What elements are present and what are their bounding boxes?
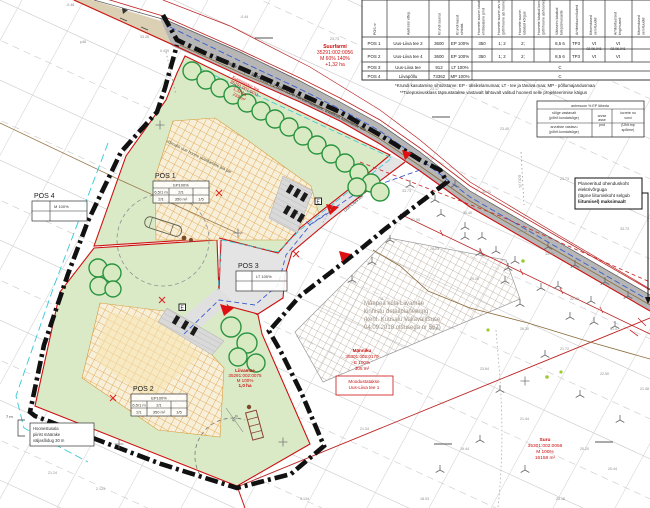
svg-text:(põhihoone ab hoone): (põhihoone ab hoone)	[502, 0, 506, 35]
svg-text:POS 1: POS 1	[368, 41, 381, 46]
svg-text:väljasõidug 30 m: väljasõidug 30 m	[33, 438, 65, 443]
svg-text:POS 4: POS 4	[368, 74, 381, 79]
svg-text:Hoonete lubatud korrus: Hoonete lubatud korrus	[537, 0, 541, 35]
svg-text:2/1: 2/1	[156, 403, 162, 408]
svg-text:MP 100%: MP 100%	[451, 74, 470, 79]
svg-text:Mäepea küla Liivamäe: Mäepea küla Liivamäe	[364, 301, 425, 307]
svg-text:Väikseim lubatud: Väikseim lubatud	[555, 8, 559, 35]
svg-text:Arhitektuursed: Arhitektuursed	[614, 12, 618, 35]
svg-text:(põhif.kondatsõge): (põhif.kondatsõge)	[549, 130, 579, 134]
svg-text:Liivapõllu: Liivapõllu	[399, 74, 418, 79]
svg-text:-0.48: -0.48	[66, 3, 74, 7]
svg-text:POS nr: POS nr	[373, 22, 377, 35]
svg-text:E 100%: E 100%	[354, 360, 370, 365]
svg-text:Uus-Liiva tee: Uus-Liiva tee	[395, 65, 421, 70]
svg-text:32.55: 32.55	[411, 218, 420, 222]
svg-text:30.31: 30.31	[482, 190, 491, 194]
svg-text:16158 m²: 16158 m²	[535, 455, 556, 461]
svg-text:POS 2: POS 2	[368, 54, 381, 59]
svg-text:arvutiste vastavu: arvutiste vastavu	[551, 125, 578, 129]
svg-text:23.64: 23.64	[480, 367, 489, 371]
svg-text:POS 2: POS 2	[133, 386, 154, 393]
svg-text:Hoonete suurim arv kru: Hoonete suurim arv kru	[497, 0, 501, 35]
svg-text:servituudid: servituudid	[642, 18, 646, 35]
svg-text:02.06.041: 02.06.041	[610, 47, 625, 51]
svg-text:2/1: 2/1	[158, 197, 164, 202]
svg-text:8,5 6: 8,5 6	[555, 54, 565, 59]
svg-text:23.11: 23.11	[519, 229, 528, 233]
svg-text:30.40: 30.40	[463, 211, 472, 215]
svg-text:3.134: 3.134	[300, 497, 309, 501]
svg-text:EP100%: EP100%	[151, 396, 167, 401]
svg-text:35301:002:0056: 35301:002:0056	[528, 443, 563, 449]
svg-text:-0.44: -0.44	[240, 15, 248, 19]
svg-text:tulepüsivusaste: tulepüsivusaste	[560, 10, 564, 35]
svg-text:35301:002:0170: 35301:002:0170	[345, 354, 379, 359]
svg-text:6,5/1 m: 6,5/1 m	[132, 403, 146, 408]
svg-text:21.34: 21.34	[360, 427, 369, 431]
svg-text:23.73: 23.73	[330, 37, 339, 41]
svg-text:(täpne liitumiskoht selgub: (täpne liitumiskoht selgub	[578, 193, 630, 198]
svg-text:Uus-Liiva tee 4: Uus-Liiva tee 4	[393, 54, 423, 59]
svg-text:(põhihoone abihoone): (põhihoone abihoone)	[542, 0, 546, 35]
svg-text:Aadressi ettep.: Aadressi ettep.	[407, 11, 411, 35]
svg-text:912: 912	[435, 65, 443, 70]
svg-text:Hoonete suurim: Hoonete suurim	[518, 10, 522, 35]
svg-text:C: C	[558, 74, 561, 79]
svg-text:1/5: 1/5	[198, 197, 204, 202]
svg-text:+1,32 ha: +1,32 ha	[325, 62, 345, 68]
svg-text:POS 4: POS 4	[34, 193, 55, 200]
svg-text:TP3: TP3	[572, 41, 581, 46]
svg-text:Kitsendused: Kitsendused	[589, 15, 593, 35]
svg-text:tingimused: tingimused	[618, 18, 622, 35]
svg-text:33.73: 33.73	[620, 227, 629, 231]
svg-text:Kitsendused: Kitsendused	[637, 15, 641, 35]
svg-text:21.72: 21.72	[560, 347, 569, 351]
svg-text:20.20: 20.20	[580, 447, 589, 451]
svg-text:2/1: 2/1	[178, 190, 184, 195]
svg-text:23.40: 23.40	[500, 127, 509, 131]
svg-text:EP100%: EP100%	[173, 183, 189, 188]
svg-text:21.24: 21.24	[48, 471, 57, 475]
svg-text:M 100%: M 100%	[54, 204, 69, 209]
svg-text:POS 1: POS 1	[155, 173, 176, 180]
svg-text:lucrete nu: lucrete nu	[620, 111, 636, 115]
svg-text:0.439: 0.439	[160, 49, 169, 53]
svg-text:3600: 3600	[434, 41, 444, 46]
svg-text:piirist määrake: piirist määrake	[33, 432, 61, 437]
svg-text:305 m²: 305 m²	[355, 366, 370, 371]
svg-text:20.44: 20.44	[608, 467, 617, 471]
svg-text:EP 100%: EP 100%	[451, 41, 469, 46]
svg-text:M 100%: M 100%	[536, 449, 554, 455]
svg-text:1/5: 1/5	[176, 410, 182, 415]
svg-text:7 m: 7 m	[6, 414, 13, 419]
svg-text:ehitisealune pind: ehitisealune pind	[482, 8, 486, 35]
svg-text:pnd: pnd	[599, 123, 605, 127]
svg-text:Suru: Suru	[540, 437, 551, 443]
svg-text:Hoonete suurim lubatud: Hoonete suurim lubatud	[477, 0, 481, 35]
svg-text:(keht. Kuusalu Vallavalitsuse: (keht. Kuusalu Vallavalitsuse	[364, 317, 441, 323]
svg-text:POS 3: POS 3	[238, 263, 259, 270]
svg-text:2/1: 2/1	[136, 410, 142, 415]
svg-text:23.73: 23.73	[560, 177, 569, 181]
svg-text:Uus-Liiva tee 2: Uus-Liiva tee 2	[393, 41, 423, 46]
svg-text:21.44: 21.44	[520, 417, 529, 421]
svg-text:antresoon % EP läheda: antresoon % EP läheda	[571, 104, 609, 108]
svg-text:28.23: 28.23	[430, 247, 439, 251]
svg-text:1; 2: 1; 2	[498, 54, 506, 59]
svg-text:Krundi suurus: Krundi suurus	[438, 13, 442, 35]
svg-text:73362: 73362	[433, 74, 446, 79]
svg-text:33.48: 33.48	[545, 252, 554, 256]
svg-text:6,5/1 m: 6,5/1 m	[154, 190, 168, 195]
svg-text:sihtotst.: sihtotst.	[460, 23, 464, 35]
svg-text:Moodustatakse: Moodustatakse	[348, 379, 380, 384]
svg-text:350: 350	[478, 54, 486, 59]
svg-text:350 m²: 350 m²	[153, 410, 166, 415]
svg-text:lubatud kõrgus: lubatud kõrgus	[523, 11, 527, 35]
svg-text:1,0 ha: 1,0 ha	[238, 383, 251, 388]
svg-text:350 m²: 350 m²	[175, 197, 188, 202]
svg-text:29.20: 29.20	[470, 277, 479, 281]
svg-text:elektrivõrguga: elektrivõrguga	[578, 187, 607, 192]
svg-text:33.73: 33.73	[402, 189, 411, 193]
svg-text:32.43: 32.43	[570, 297, 579, 301]
svg-text:02.06.041: 02.06.041	[586, 47, 601, 51]
svg-text:*Krundi kasutamise sihtotstarv: *Krundi kasutamise sihtotstarve: EP - ük…	[395, 83, 595, 88]
svg-text:18.03: 18.03	[420, 497, 429, 501]
svg-text:asse: asse	[598, 118, 606, 122]
svg-text:EP 100%: EP 100%	[451, 54, 469, 59]
svg-text:liitumisel) maksimaalt: liitumisel) maksimaalt	[578, 199, 626, 204]
svg-text:21.48: 21.48	[640, 387, 649, 391]
svg-text:2;: 2;	[521, 54, 525, 59]
svg-text:26.30: 26.30	[520, 327, 529, 331]
svg-text:sõlge vastavalt: sõlge vastavalt	[552, 111, 576, 115]
svg-text:kinnistu detailplaneering: kinnistu detailplaneering	[364, 309, 428, 315]
svg-text:Krundi kasut.: Krundi kasut.	[456, 14, 460, 35]
svg-text:Uus-Liiva tee 1: Uus-Liiva tee 1	[349, 385, 380, 390]
svg-text:2;: 2;	[521, 41, 525, 46]
svg-text:spõime): spõime)	[622, 128, 635, 132]
svg-text:31.07: 31.07	[610, 327, 619, 331]
svg-text:POS 3: POS 3	[368, 65, 381, 70]
svg-text:(Ühit.mp: (Ühit.mp	[621, 123, 635, 127]
svg-text:3600: 3600	[434, 54, 444, 59]
svg-text:LT 100%: LT 100%	[256, 274, 272, 279]
svg-text:C: C	[558, 65, 561, 70]
svg-text:Hoonestusala: Hoonestusala	[33, 426, 59, 431]
svg-text:Arhitektuurinõuded: Arhitektuurinõuded	[575, 5, 579, 35]
svg-text:19.44: 19.44	[460, 447, 469, 451]
svg-text:8,5 6: 8,5 6	[555, 41, 565, 46]
svg-text:2.124: 2.124	[96, 487, 105, 491]
svg-text:1; 2: 1; 2	[498, 41, 506, 46]
svg-text:Männiku: Männiku	[353, 348, 372, 353]
svg-text:(põhif.kondatsõge): (põhif.kondatsõge)	[549, 116, 579, 120]
svg-text:vurci: vurci	[624, 116, 632, 120]
svg-text:TP3: TP3	[572, 54, 581, 59]
svg-text:22.50: 22.50	[600, 372, 609, 376]
svg-text:servituudid: servituudid	[594, 18, 598, 35]
svg-text:23.18: 23.18	[556, 497, 565, 501]
svg-text:33.28: 33.28	[140, 35, 149, 39]
svg-text:p48: p48	[80, 40, 86, 44]
svg-text:04.09.2018 otsusega nr 567): 04.09.2018 otsusega nr 567)	[364, 325, 441, 331]
svg-text:Planeeritud ühenduskoht: Planeeritud ühenduskoht	[578, 181, 630, 186]
svg-text:**Tulepüsivusklass täpsustatak: **Tulepüsivusklass täpsustatakse vastava…	[400, 90, 588, 95]
svg-text:LT 100%: LT 100%	[451, 65, 468, 70]
svg-text:350: 350	[478, 41, 486, 46]
